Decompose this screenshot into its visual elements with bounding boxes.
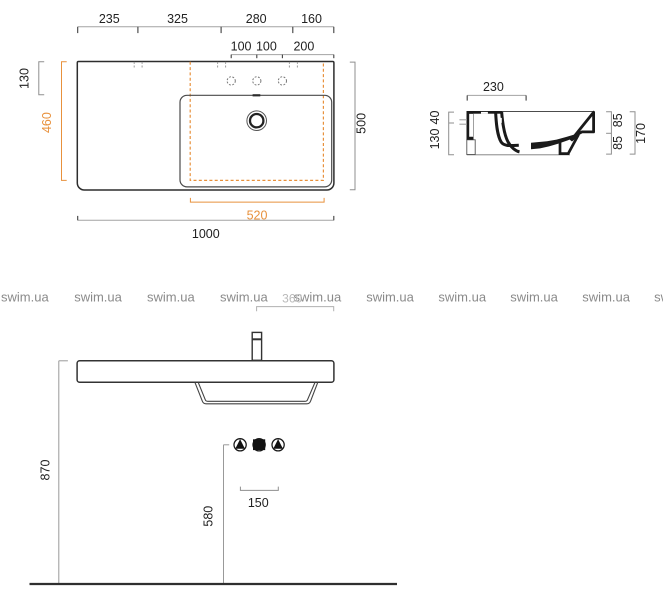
svg-text:1000: 1000	[192, 227, 220, 241]
svg-text:swim.ua: swim.ua	[147, 290, 195, 305]
svg-text:200: 200	[293, 40, 314, 54]
svg-text:130: 130	[18, 68, 32, 89]
svg-text:40: 40	[428, 111, 442, 125]
svg-text:360: 360	[282, 291, 302, 305]
svg-text:swim.ua: swim.ua	[74, 290, 122, 305]
svg-text:swim.ua: swim.ua	[1, 290, 49, 305]
svg-text:100: 100	[231, 40, 252, 54]
svg-text:280: 280	[246, 12, 267, 26]
svg-text:230: 230	[483, 80, 504, 94]
svg-text:150: 150	[248, 496, 269, 510]
svg-text:swim.ua: swim.ua	[220, 290, 268, 305]
svg-text:170: 170	[634, 123, 648, 144]
svg-text:460: 460	[40, 112, 54, 133]
svg-text:85: 85	[611, 136, 625, 150]
svg-text:325: 325	[167, 12, 188, 26]
svg-text:130: 130	[428, 129, 442, 150]
svg-text:swim.ua: swim.ua	[582, 290, 630, 305]
svg-text:160: 160	[301, 12, 322, 26]
svg-text:swim.ua: swim.ua	[654, 290, 663, 305]
svg-text:500: 500	[354, 113, 368, 134]
svg-text:100: 100	[256, 40, 277, 54]
svg-text:870: 870	[38, 460, 52, 481]
svg-text:580: 580	[202, 506, 216, 527]
svg-text:swim.ua: swim.ua	[438, 290, 486, 305]
svg-text:swim.ua: swim.ua	[366, 290, 414, 305]
svg-text:swim.ua: swim.ua	[510, 290, 558, 305]
svg-text:235: 235	[99, 12, 120, 26]
svg-text:85: 85	[611, 113, 625, 127]
